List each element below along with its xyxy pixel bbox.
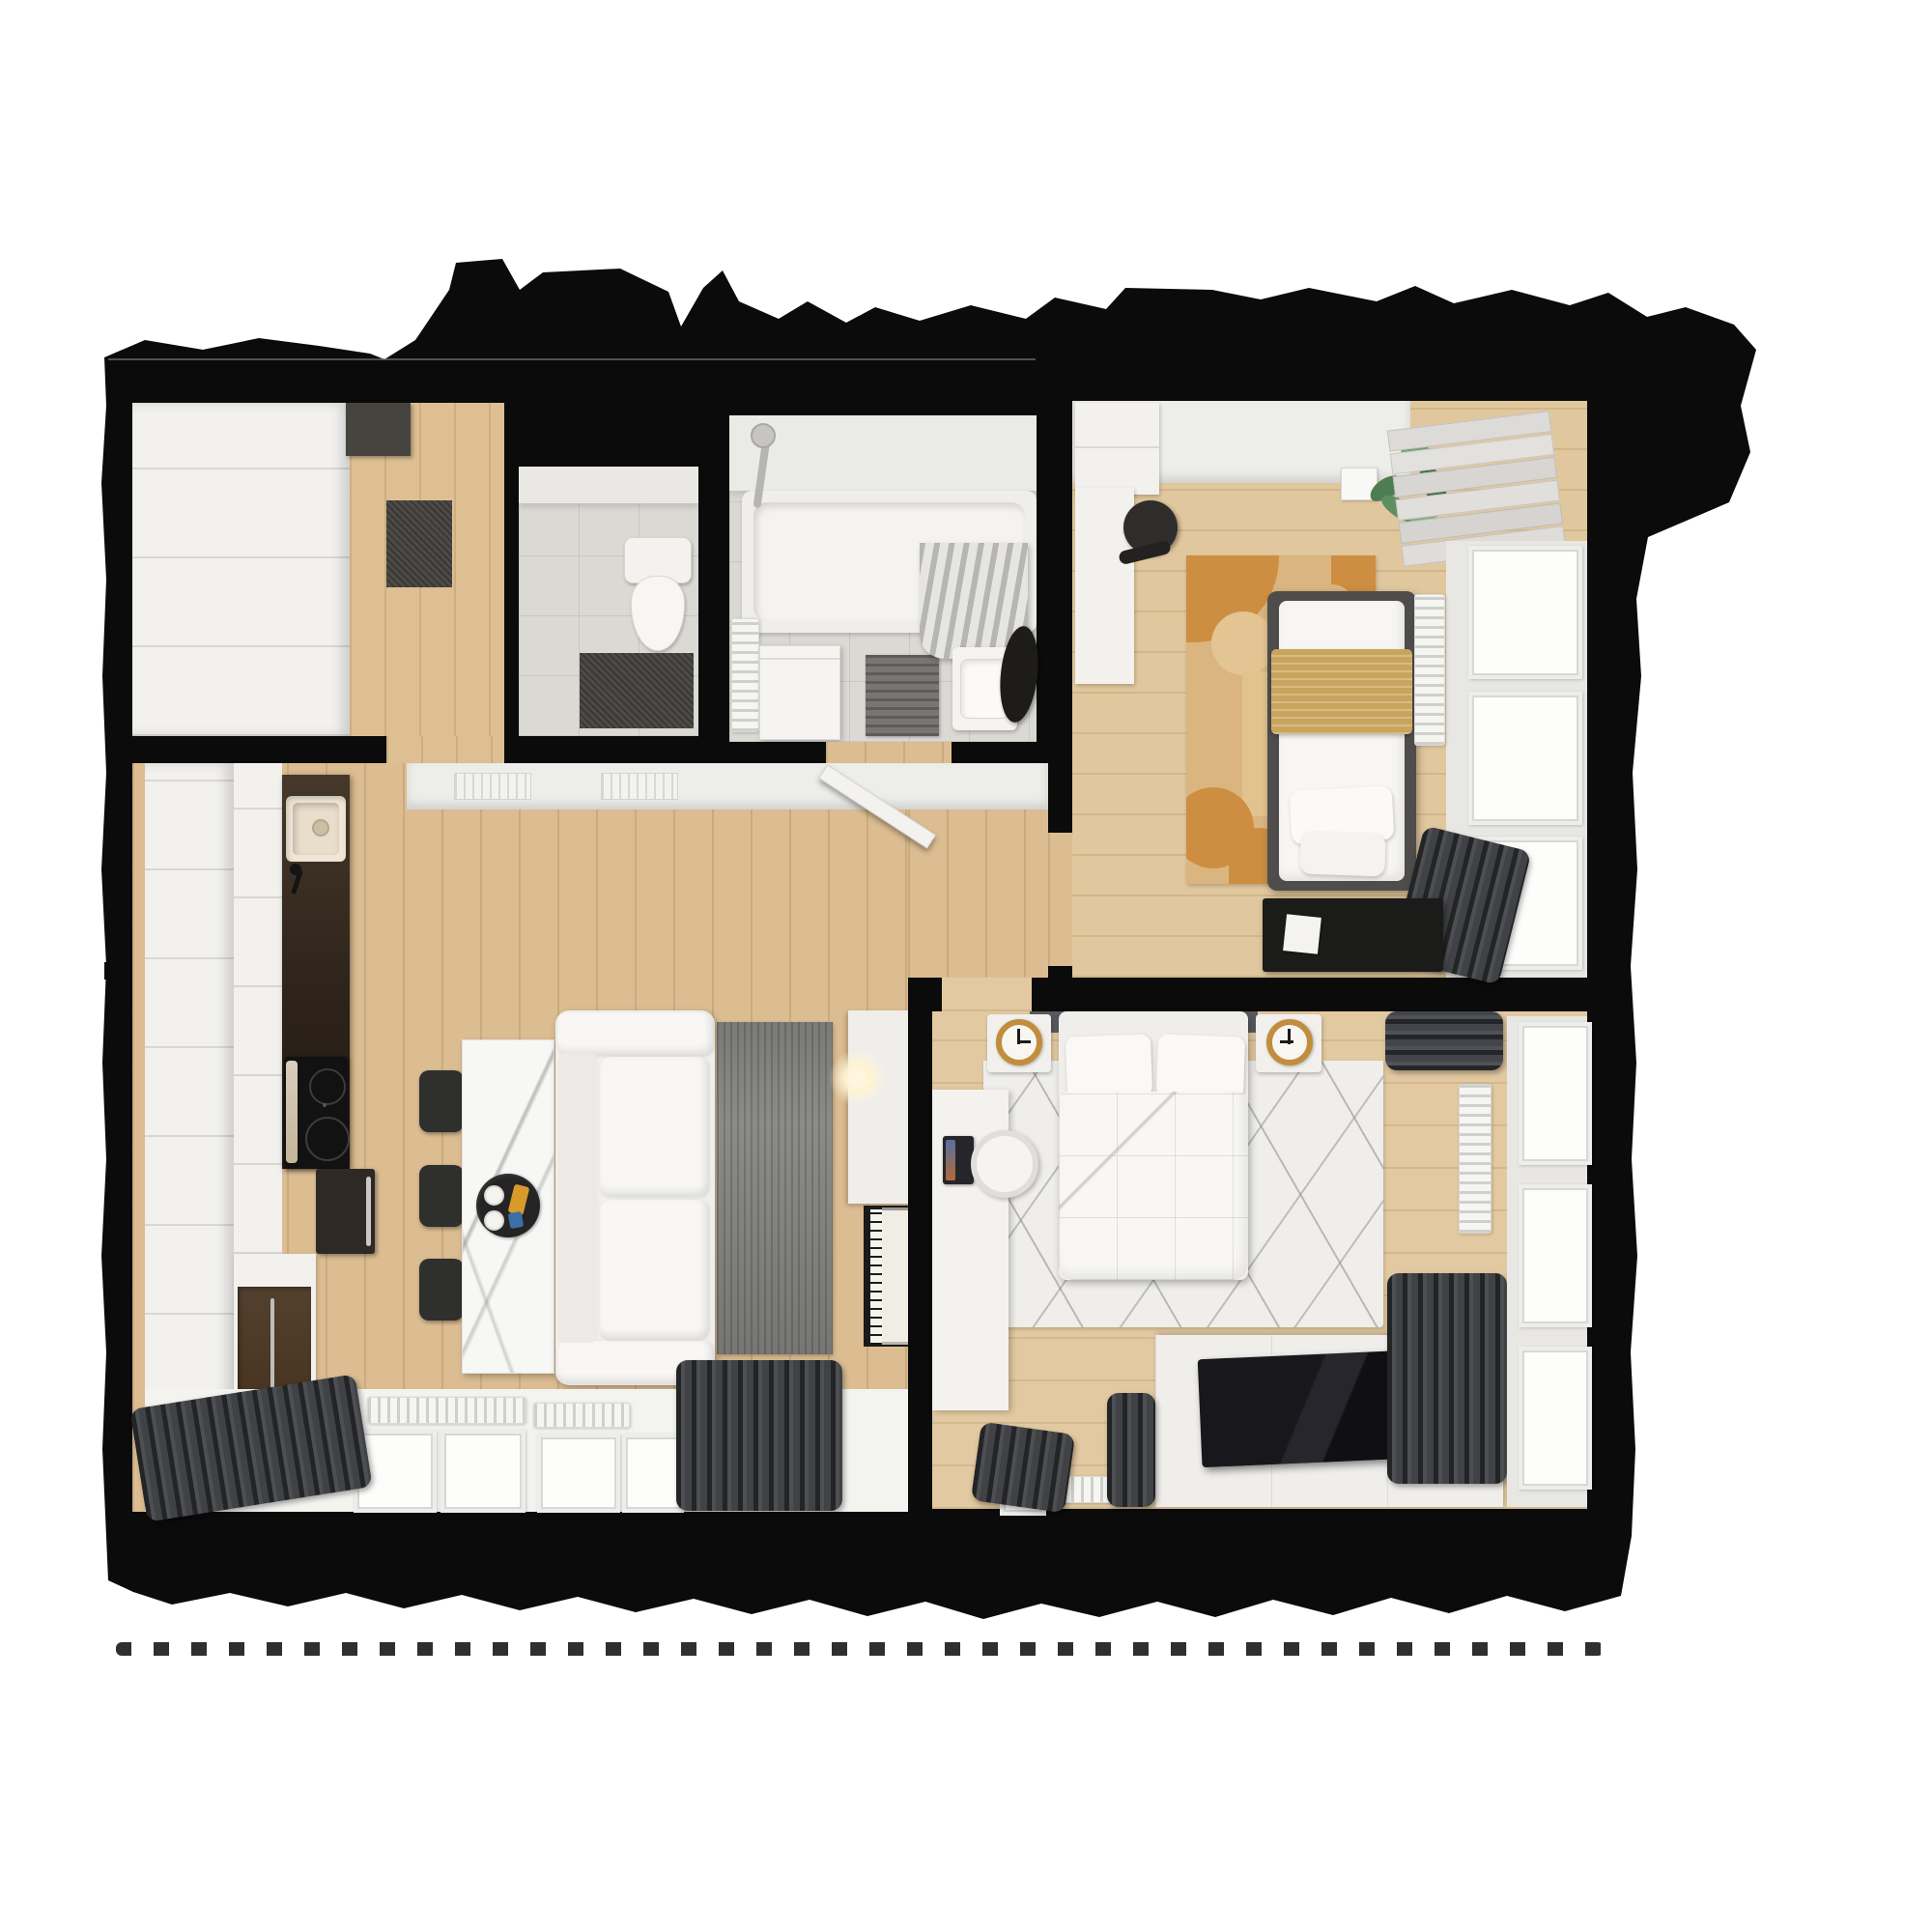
bathroom-door-threshold bbox=[826, 742, 952, 763]
media-console bbox=[848, 1010, 908, 1204]
bedroom1-radiator bbox=[1414, 594, 1445, 746]
dining-chair bbox=[419, 1259, 464, 1321]
sofa-seat bbox=[600, 1057, 708, 1196]
piano-keys bbox=[870, 1209, 882, 1343]
window-pane bbox=[622, 1434, 684, 1513]
room-bathroom bbox=[729, 415, 1037, 742]
bedroom2-curtain-right bbox=[1387, 1273, 1507, 1484]
floor-plan-canvas bbox=[0, 0, 1932, 1932]
bedroom2-curtain-bottomleft bbox=[971, 1422, 1075, 1514]
room-toilet bbox=[519, 467, 698, 736]
pillow bbox=[1065, 1034, 1152, 1098]
wc-wall-band bbox=[519, 467, 698, 503]
bedroom2-radiator bbox=[1459, 1084, 1492, 1234]
double-bed bbox=[1059, 1011, 1248, 1280]
window-pane bbox=[1519, 1022, 1592, 1165]
bedroom1-dresser bbox=[1263, 898, 1443, 972]
bath-wall-band bbox=[729, 415, 1037, 491]
torn-speckle-fringe bbox=[116, 1642, 1604, 1656]
kitchen-sink bbox=[286, 796, 346, 862]
living-curtain-right bbox=[676, 1360, 842, 1511]
towel-radiator bbox=[731, 618, 759, 732]
bedroom1-wardrobe bbox=[1075, 403, 1159, 495]
kitchen-cabinets bbox=[145, 763, 234, 1492]
pillow bbox=[1299, 831, 1385, 876]
desk-chair bbox=[971, 1130, 1038, 1198]
room-bedroom1 bbox=[1072, 401, 1587, 978]
living-radiator bbox=[367, 1397, 526, 1424]
entry-living-threshold bbox=[386, 736, 504, 763]
induction-cooktop bbox=[284, 1057, 348, 1169]
duvet bbox=[1059, 1092, 1248, 1280]
window-pane bbox=[1468, 546, 1582, 679]
dining-chair bbox=[419, 1070, 464, 1132]
window-pane bbox=[1519, 1184, 1592, 1327]
living-soffit bbox=[407, 763, 1048, 810]
sofa-back bbox=[557, 1053, 598, 1343]
ceiling-vent bbox=[601, 773, 678, 800]
sofa-armrest bbox=[557, 1012, 713, 1055]
sofa bbox=[555, 1010, 715, 1385]
gold-clock bbox=[1266, 1019, 1313, 1065]
entry-doormat bbox=[386, 500, 452, 587]
table-lamp bbox=[848, 1068, 867, 1088]
living-radiator bbox=[533, 1403, 630, 1428]
dining-table bbox=[462, 1039, 554, 1374]
pillow bbox=[1156, 1034, 1245, 1098]
window-pane bbox=[1468, 692, 1582, 825]
sofa-seat bbox=[600, 1200, 708, 1339]
dining-chair bbox=[419, 1165, 464, 1227]
window-pane bbox=[440, 1430, 526, 1513]
upright-piano bbox=[864, 1206, 908, 1347]
bedroom2-window-band bbox=[1507, 1016, 1587, 1507]
wall-hairline bbox=[108, 358, 1036, 360]
piano-body bbox=[882, 1207, 908, 1345]
washing-machine bbox=[759, 645, 840, 740]
bedroom2-curtain-topright bbox=[1385, 1011, 1503, 1070]
toilet-bowl bbox=[631, 576, 685, 651]
laptop bbox=[943, 1136, 974, 1184]
storage-locker bbox=[346, 403, 411, 456]
ceiling-vent bbox=[454, 773, 531, 800]
room-entry bbox=[132, 403, 504, 736]
room-bedroom2 bbox=[932, 1011, 1587, 1509]
bedroom2-curtain-bottommid bbox=[1107, 1393, 1155, 1507]
wc-mat bbox=[580, 653, 694, 728]
window-pane bbox=[1519, 1347, 1592, 1490]
single-bed bbox=[1267, 591, 1416, 891]
entry-wardrobe bbox=[132, 403, 350, 736]
window-pane bbox=[537, 1434, 620, 1513]
gold-clock bbox=[996, 1019, 1042, 1065]
living-rug bbox=[717, 1022, 833, 1354]
shower-head-icon bbox=[751, 423, 776, 448]
bath-mat bbox=[866, 655, 939, 736]
mustard-throw bbox=[1271, 649, 1412, 734]
kitchen-upper-face bbox=[234, 763, 282, 1254]
serving-tray bbox=[476, 1174, 540, 1237]
bedroom2-door-threshold bbox=[942, 978, 1032, 1011]
oven bbox=[316, 1169, 375, 1254]
bedroom1-door-threshold bbox=[1048, 833, 1072, 966]
